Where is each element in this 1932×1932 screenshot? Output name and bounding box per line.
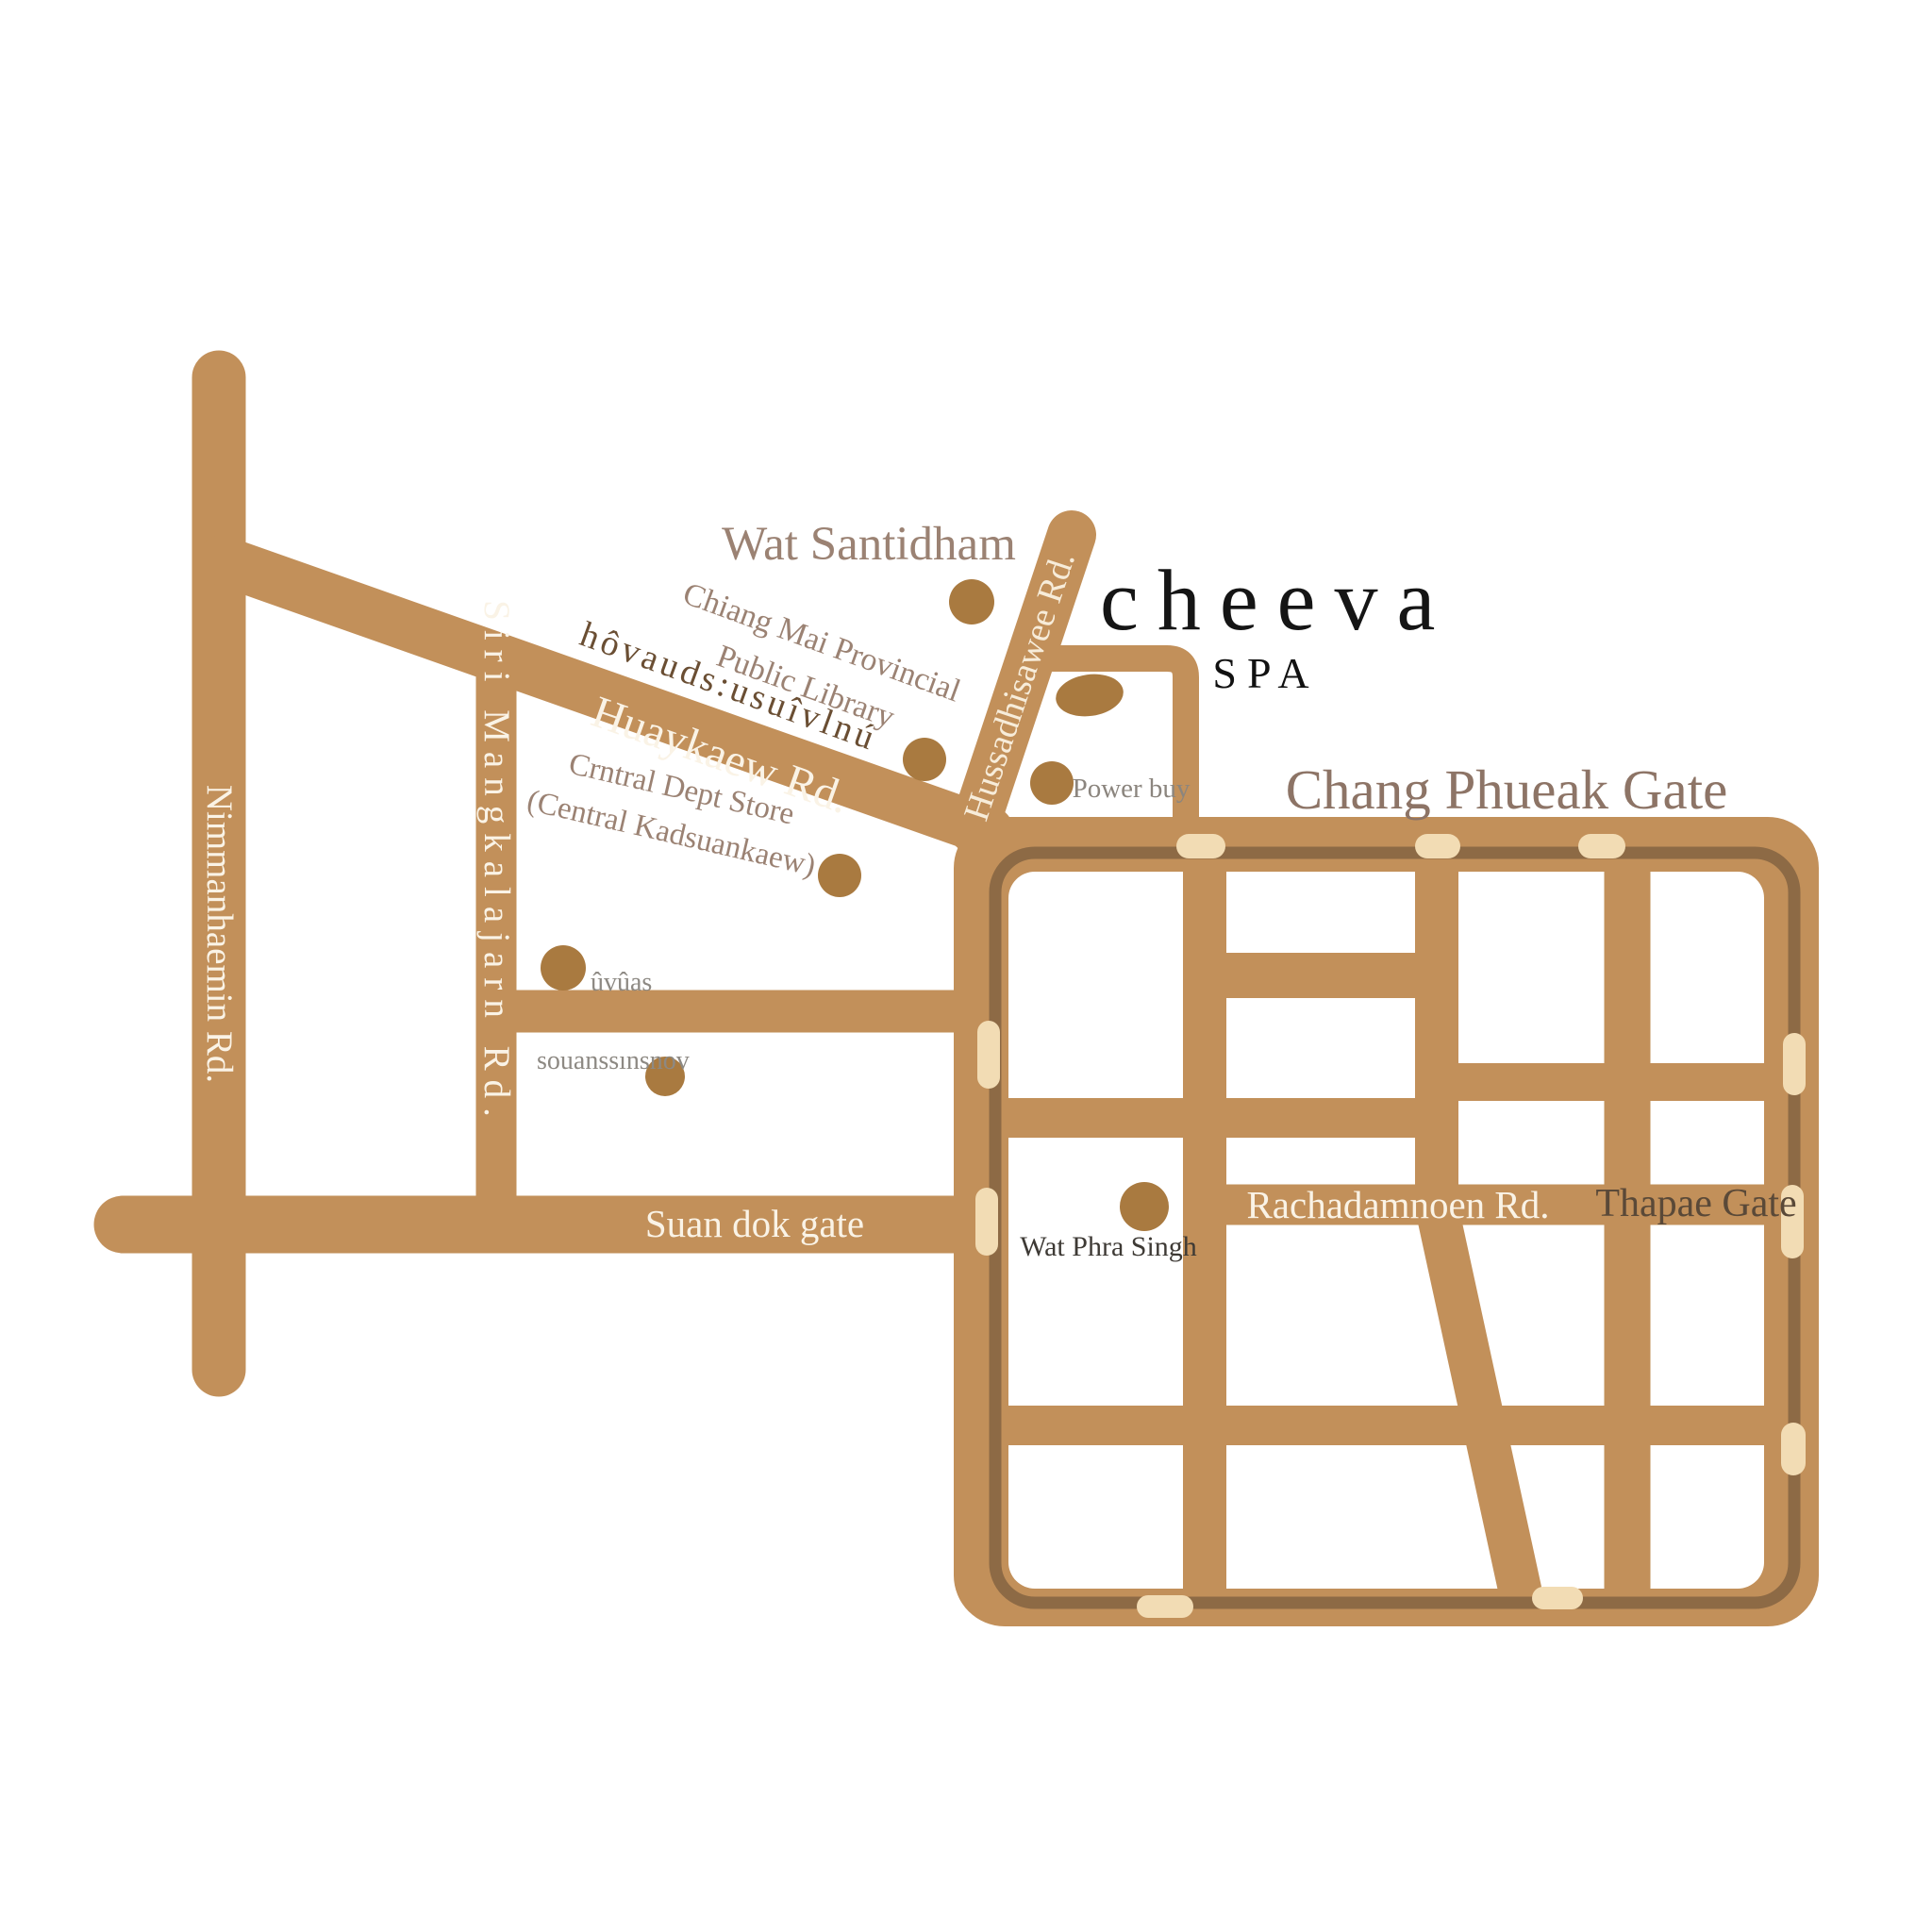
svg-text:Wat Santidham: Wat Santidham bbox=[722, 518, 1016, 571]
svg-text:Thapae Gate: Thapae Gate bbox=[1595, 1182, 1796, 1225]
svg-text:ûvûas: ûvûas bbox=[591, 968, 652, 997]
svg-text:Rachadamnoen Rd.: Rachadamnoen Rd. bbox=[1246, 1183, 1549, 1226]
svg-text:Wat Phra Singh: Wat Phra Singh bbox=[1020, 1231, 1197, 1262]
svg-text:Suan dok gate: Suan dok gate bbox=[645, 1202, 864, 1245]
svg-text:Power buy: Power buy bbox=[1073, 774, 1191, 804]
svg-text:cheeva: cheeva bbox=[1100, 552, 1454, 648]
svg-text:Chang Phueak Gate: Chang Phueak Gate bbox=[1286, 758, 1728, 821]
svg-text:SPA: SPA bbox=[1212, 649, 1319, 697]
svg-text:Siri Mangkalajarn Rd.: Siri Mangkalajarn Rd. bbox=[476, 600, 517, 1126]
svg-text:souanssınsnov: souanssınsnov bbox=[537, 1046, 690, 1075]
svg-text:Nimmanhaemin Rd.: Nimmanhaemin Rd. bbox=[199, 785, 240, 1083]
